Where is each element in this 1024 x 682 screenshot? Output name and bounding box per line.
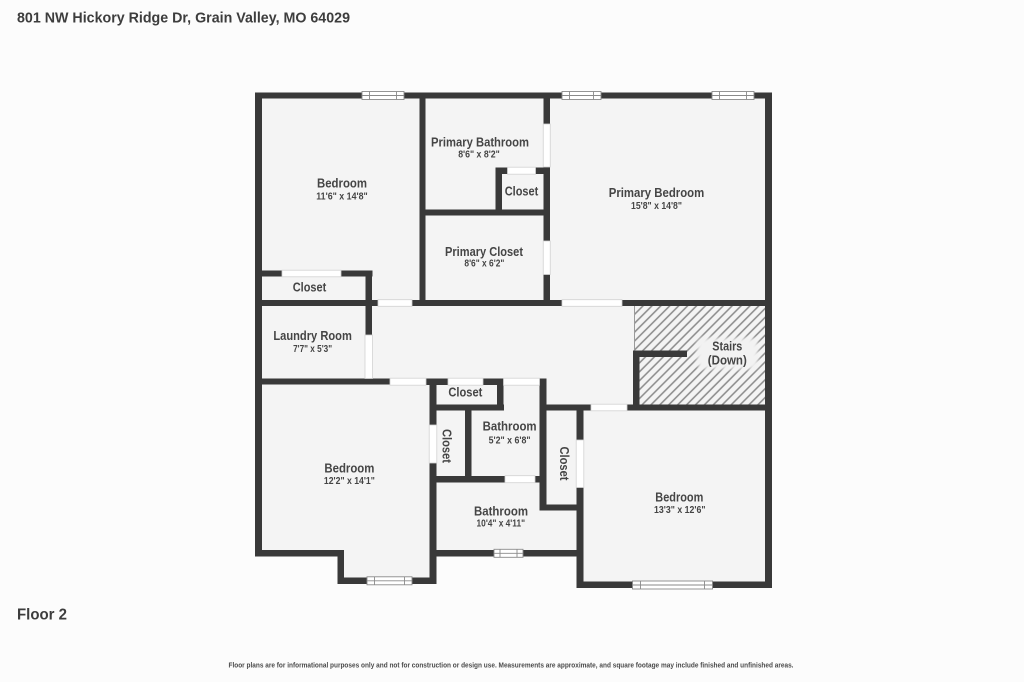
svg-text:Floor plans are for informatio: Floor plans are for informational purpos…: [229, 663, 794, 670]
svg-text:(Down): (Down): [708, 353, 747, 368]
svg-text:15'8" x 14'8": 15'8" x 14'8": [631, 201, 682, 212]
svg-text:13'3" x 12'6": 13'3" x 12'6": [654, 505, 706, 516]
svg-text:10'4" x 4'11": 10'4" x 4'11": [477, 519, 526, 530]
svg-text:Stairs: Stairs: [712, 339, 742, 354]
svg-text:Primary Closet: Primary Closet: [445, 244, 524, 259]
svg-text:Closet: Closet: [505, 184, 539, 199]
svg-text:Bathroom: Bathroom: [474, 504, 528, 519]
svg-text:7'7" x 5'3": 7'7" x 5'3": [293, 344, 332, 355]
svg-text:12'2" x 14'1": 12'2" x 14'1": [324, 476, 375, 487]
svg-text:11'6" x 14'8": 11'6" x 14'8": [316, 192, 368, 203]
svg-text:Bedroom: Bedroom: [317, 176, 367, 191]
svg-text:8'6" x 8'2": 8'6" x 8'2": [458, 150, 500, 161]
svg-text:Bedroom: Bedroom: [324, 461, 374, 476]
svg-text:8'6" x 6'2": 8'6" x 6'2": [464, 259, 504, 270]
svg-text:801 NW Hickory Ridge Dr, Grain: 801 NW Hickory Ridge Dr, Grain Valley, M…: [17, 10, 350, 27]
svg-text:Bathroom: Bathroom: [483, 419, 537, 434]
svg-text:Primary Bathroom: Primary Bathroom: [431, 135, 529, 150]
svg-text:Floor 2: Floor 2: [17, 607, 67, 624]
svg-text:5'2" x 6'8": 5'2" x 6'8": [489, 436, 531, 447]
svg-text:Bedroom: Bedroom: [655, 490, 703, 505]
svg-text:Laundry Room: Laundry Room: [273, 328, 352, 343]
svg-text:Closet: Closet: [439, 429, 454, 464]
svg-text:Closet: Closet: [557, 447, 572, 482]
svg-text:Closet: Closet: [448, 385, 483, 400]
svg-text:Closet: Closet: [293, 280, 327, 295]
svg-text:Primary Bedroom: Primary Bedroom: [609, 185, 705, 200]
